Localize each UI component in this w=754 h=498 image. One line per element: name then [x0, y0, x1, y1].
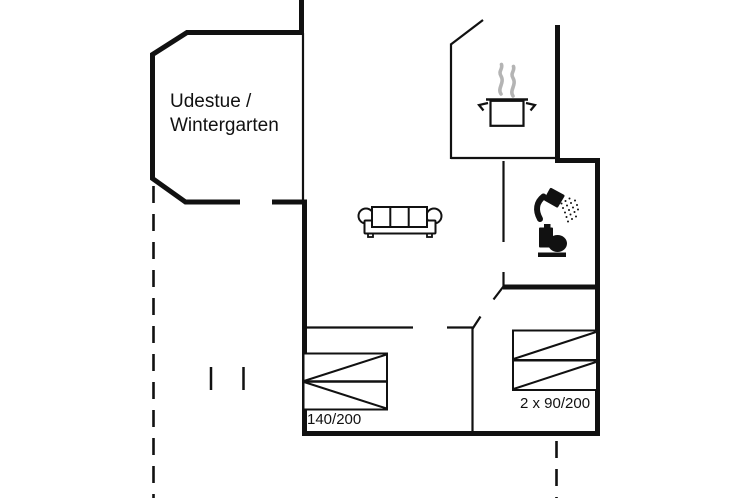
steam-icon	[500, 65, 514, 97]
bedroom2-door-leaf	[473, 317, 481, 329]
bed-size-label-twin: 2 x 90/200	[520, 395, 590, 412]
steam-wave-left	[500, 65, 502, 95]
twin-beds-icon	[513, 331, 597, 391]
room-label-conservatory: Udestue / Wintergarten	[170, 90, 279, 138]
steam-wave-right	[512, 67, 514, 97]
floor-plan: Udestue / Wintergarten 140/200 2 x 90/20…	[0, 0, 754, 498]
sofa-icon	[359, 207, 442, 237]
cooking-pot-icon	[479, 100, 535, 126]
toilet-base	[538, 253, 566, 258]
pot-handle-right	[526, 103, 535, 111]
double-bed-icon	[304, 354, 388, 410]
boundary-lines	[154, 186, 557, 498]
bed-size-label-double: 140/200	[307, 411, 361, 428]
entrance-ticks	[211, 367, 244, 390]
toilet-icon	[538, 224, 567, 257]
shower-arm	[537, 197, 543, 220]
shower-spray	[561, 198, 580, 223]
pot-body	[491, 101, 524, 126]
room-label-line1: Udestue /	[170, 90, 279, 114]
bathroom-door-leaf	[494, 286, 504, 300]
shower-head	[546, 190, 564, 207]
floor-plan-drawing	[0, 0, 754, 498]
sofa-cushions	[372, 207, 427, 227]
room-label-line2: Wintergarten	[170, 114, 279, 138]
toilet-bowl	[548, 235, 567, 252]
pot-handle-left	[479, 103, 488, 111]
shower-icon	[537, 190, 579, 223]
wall-kitchen-diagonal	[451, 20, 483, 45]
